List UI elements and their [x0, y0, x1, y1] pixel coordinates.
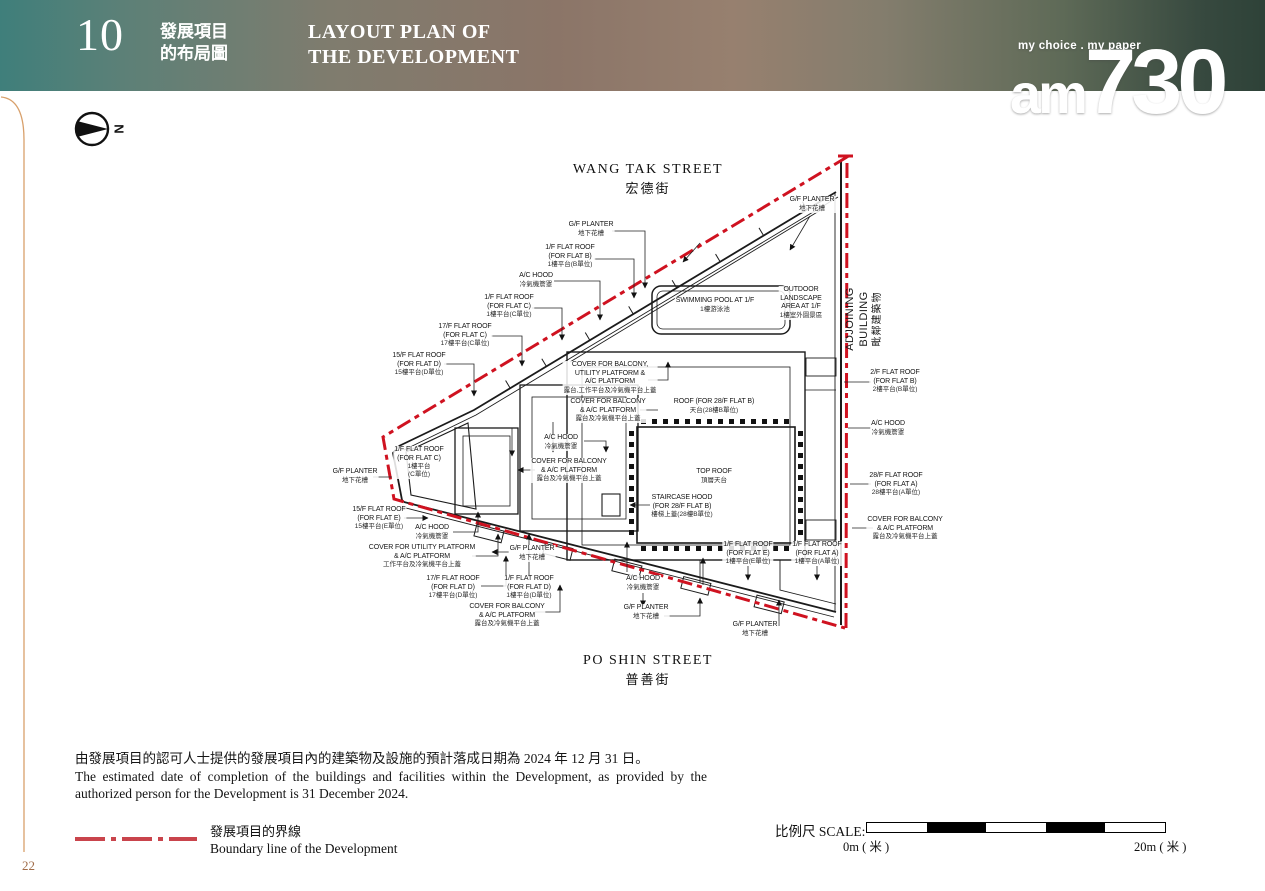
gf-planter-boxes — [474, 524, 784, 613]
facade-fins — [506, 202, 807, 388]
page-number: 22 — [22, 858, 35, 874]
street-label-wang-tak: WANG TAK STREET 宏德街 — [573, 162, 723, 197]
scale-bar — [866, 822, 1166, 833]
scale-end-value: 20m ( 米 ) — [1134, 836, 1186, 855]
svg-text:N: N — [112, 124, 127, 133]
completion-note-english: The estimated date of completion of the … — [75, 768, 707, 802]
completion-note-chinese: 由發展項目的認可人士提供的發展項目內的建築物及設施的預計落成日期為 2024 年… — [75, 750, 707, 768]
scale-start-value: 0m ( 米 ) — [843, 836, 889, 855]
top-roof-teeth — [629, 419, 803, 551]
am730-logo: my choice . my paper am730 — [1010, 40, 1223, 128]
boundary-line-sample — [75, 837, 197, 841]
building-outline — [393, 160, 841, 625]
north-arrow-icon: N — [66, 106, 128, 152]
street-label-po-shin: PO SHIN STREET 普善街 — [583, 653, 713, 688]
logo-wordmark: am730 — [1010, 36, 1223, 128]
left-accent-rule — [1, 97, 24, 852]
adjoining-building-label: ADJOINING BUILDING 毗鄰建築物 — [843, 263, 873, 375]
legend-text: 發展項目的界線 Boundary line of the Development — [210, 823, 397, 857]
brochure-page: 10 發展項目 的布局圖 LAYOUT PLAN OF THE DEVELOPM… — [0, 0, 1265, 891]
completion-note: 由發展項目的認可人士提供的發展項目內的建築物及設施的預計落成日期為 2024 年… — [75, 750, 707, 802]
